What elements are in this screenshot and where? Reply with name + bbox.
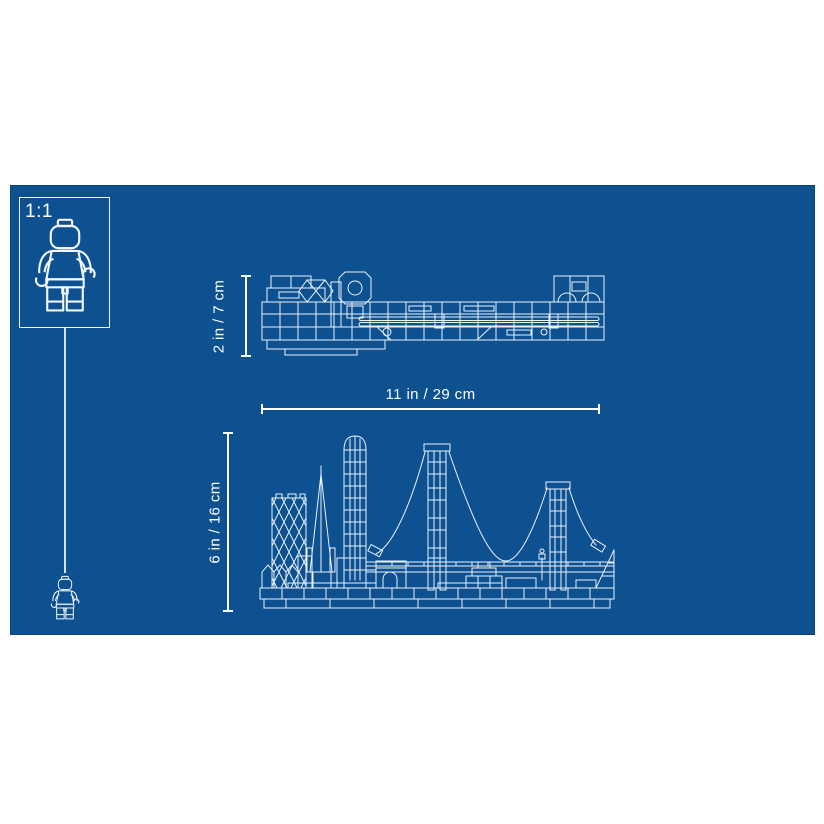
set-width-label: 11 in / 29 cm bbox=[386, 386, 476, 403]
scale-connector-line bbox=[64, 328, 66, 573]
set-width-dimension-line bbox=[261, 408, 600, 410]
set-width-dimension: 11 in / 29 cm bbox=[261, 386, 600, 404]
top-view-height-dimension-line bbox=[245, 275, 247, 357]
scale-reference-box: 1:1 bbox=[19, 197, 110, 328]
front-view-height-dimension: 6 in / 16 cm bbox=[203, 432, 227, 612]
skyline-front-view-drawing bbox=[258, 430, 616, 616]
front-view-height-dimension-line bbox=[227, 432, 229, 612]
set-top-view-drawing bbox=[259, 262, 619, 362]
minifigure-icon bbox=[33, 213, 97, 319]
minifigure-small-icon bbox=[50, 573, 80, 623]
front-view-height-label: 6 in / 16 cm bbox=[207, 481, 224, 563]
top-view-height-label: 2 in / 7 cm bbox=[211, 279, 228, 353]
top-view-height-dimension: 2 in / 7 cm bbox=[207, 275, 231, 357]
blueprint-panel: 1:1 2 in / 7 cm bbox=[10, 185, 815, 635]
